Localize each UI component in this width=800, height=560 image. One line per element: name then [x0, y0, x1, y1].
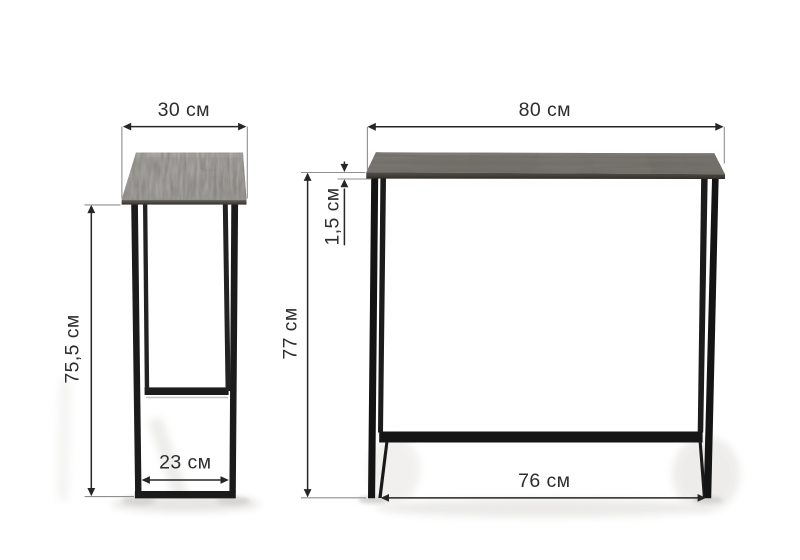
svg-text:30 см: 30 см — [158, 99, 210, 121]
svg-text:80 см: 80 см — [519, 99, 571, 121]
svg-text:23 см: 23 см — [159, 451, 211, 473]
svg-text:75,5 см: 75,5 см — [62, 314, 84, 383]
svg-text:77 см: 77 см — [280, 307, 302, 359]
svg-text:76 см: 76 см — [518, 470, 570, 492]
svg-text:1,5 см: 1,5 см — [322, 187, 344, 245]
